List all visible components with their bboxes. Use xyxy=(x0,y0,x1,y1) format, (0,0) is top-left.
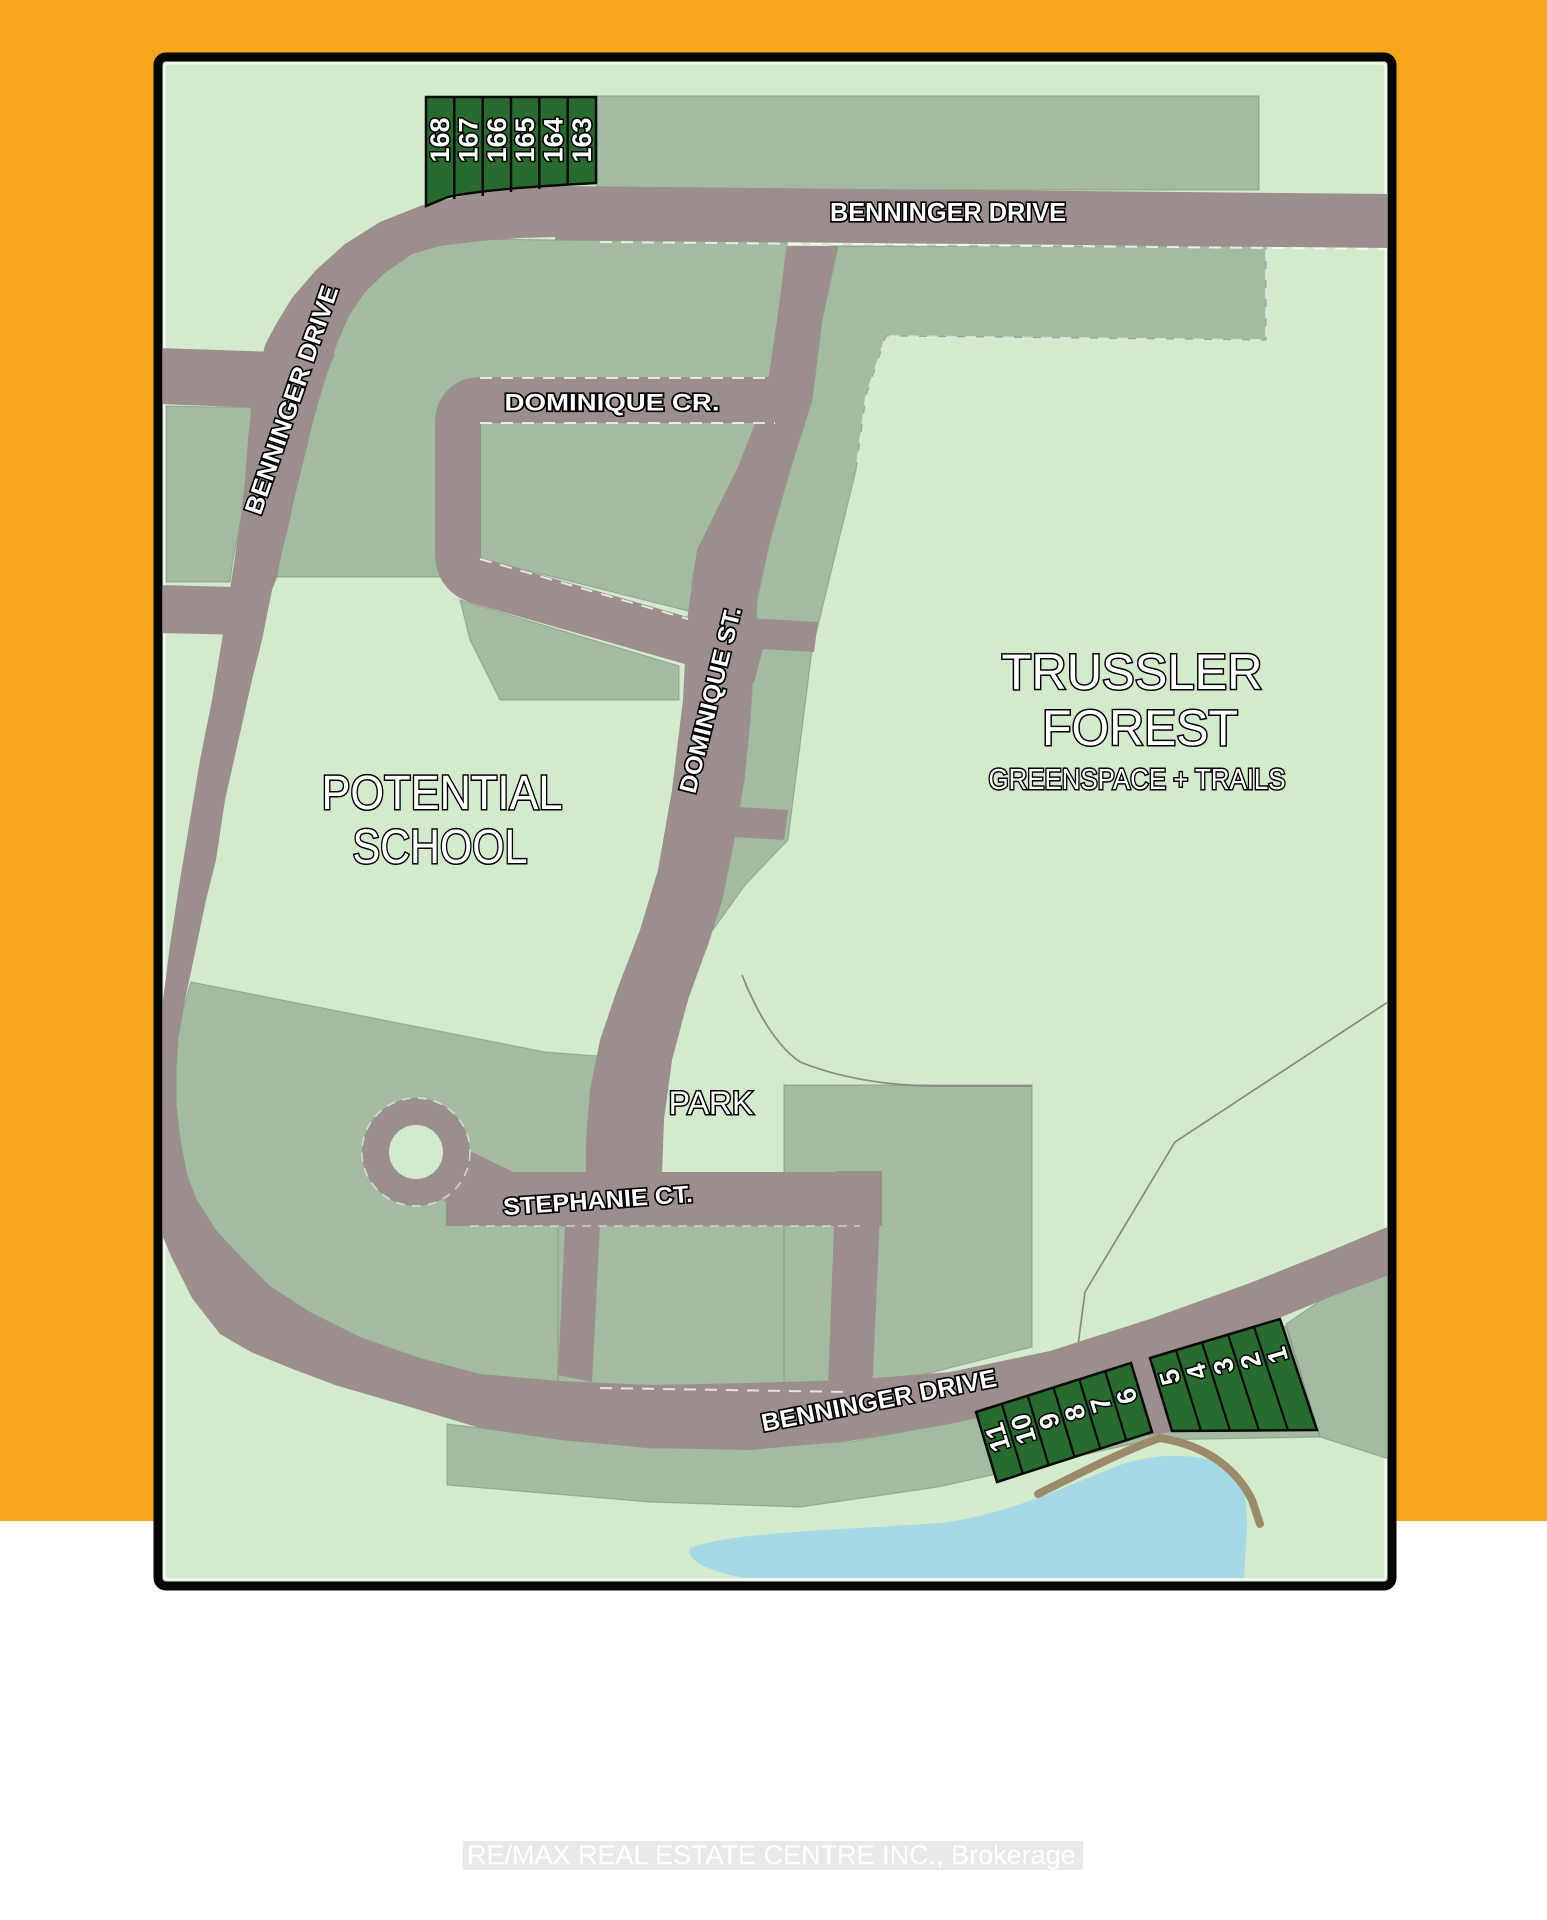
svg-text:FOREST: FOREST xyxy=(1042,700,1238,756)
svg-text:DOMINIQUE CR.: DOMINIQUE CR. xyxy=(505,390,720,417)
svg-text:168: 168 xyxy=(425,117,455,162)
svg-text:GREENSPACE + TRAILS: GREENSPACE + TRAILS xyxy=(989,764,1286,796)
svg-text:BENNINGER DRIVE: BENNINGER DRIVE xyxy=(830,197,1066,227)
svg-text:RE/MAX REAL ESTATE CENTRE INC.: RE/MAX REAL ESTATE CENTRE INC., Brokerag… xyxy=(467,1840,1076,1870)
svg-text:167: 167 xyxy=(454,117,484,162)
svg-text:165: 165 xyxy=(510,117,540,162)
svg-text:PARK: PARK xyxy=(669,1085,754,1121)
svg-text:163: 163 xyxy=(567,117,597,162)
svg-text:POTENTIAL: POTENTIAL xyxy=(322,767,563,820)
svg-text:SCHOOL: SCHOOL xyxy=(353,821,528,874)
svg-text:TRUSSLER: TRUSSLER xyxy=(1002,644,1263,700)
svg-text:166: 166 xyxy=(482,117,512,162)
svg-text:164: 164 xyxy=(539,117,569,162)
